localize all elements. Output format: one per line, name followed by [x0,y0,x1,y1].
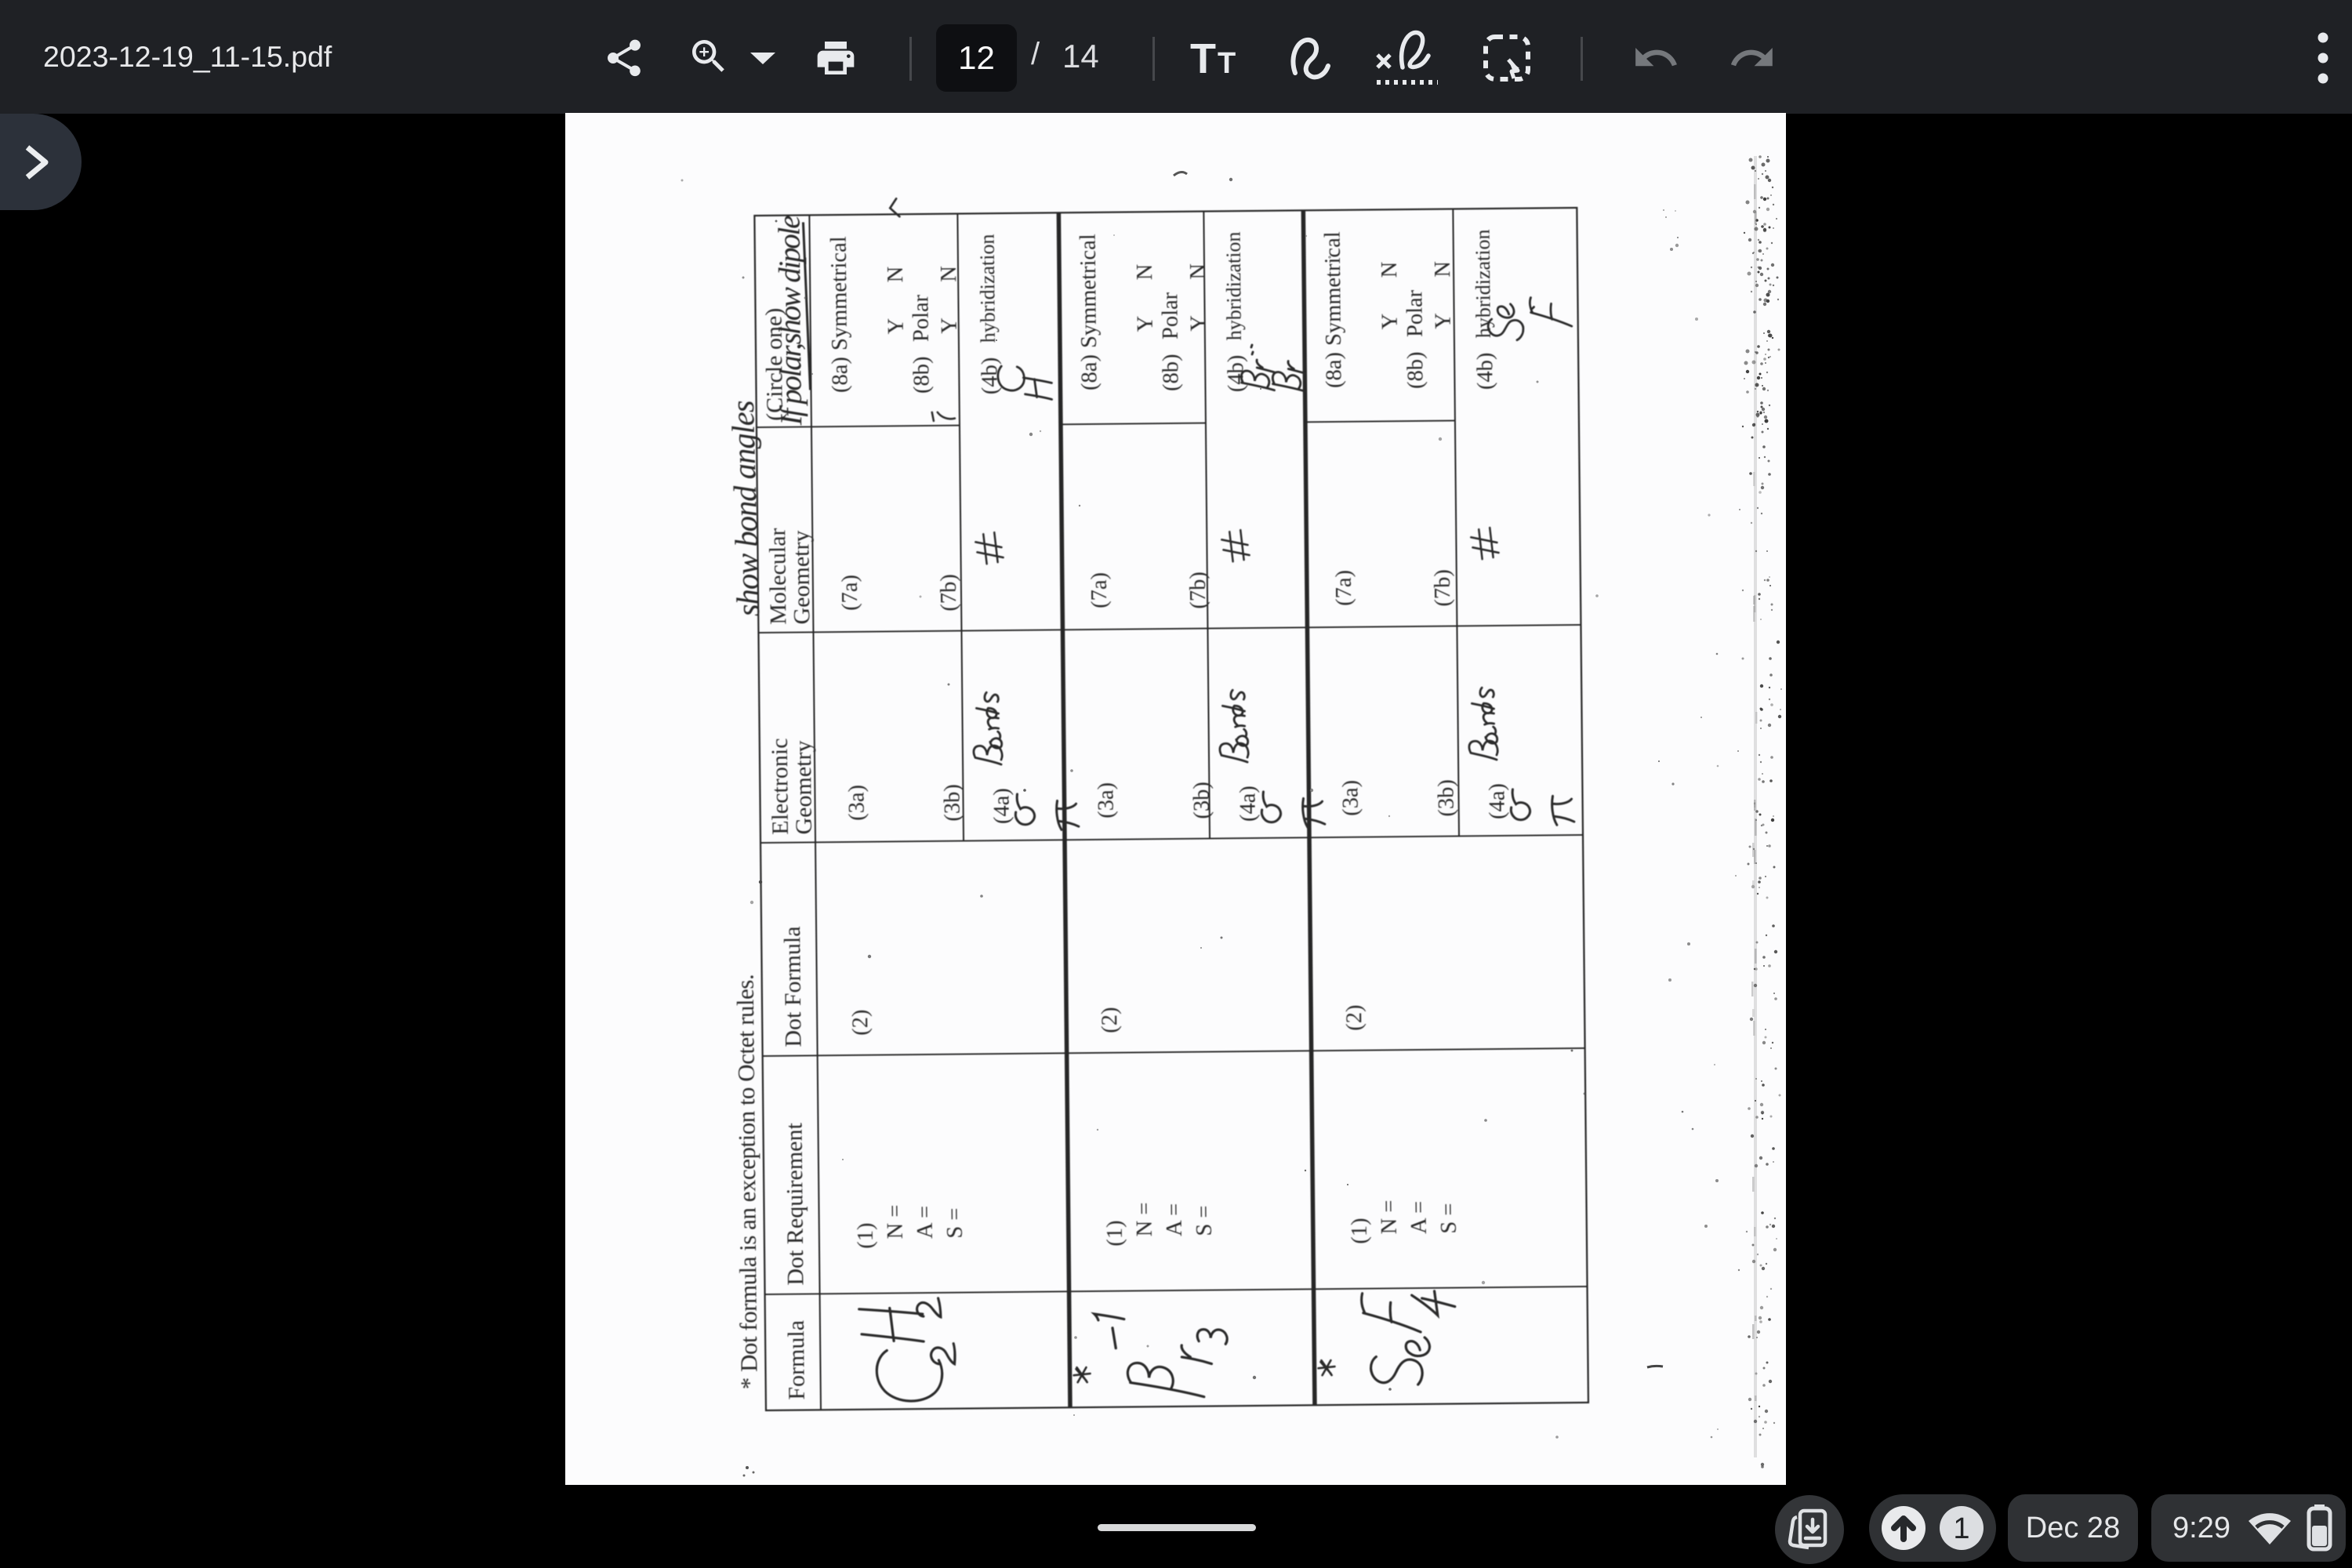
svg-text:T: T [1218,47,1236,80]
svg-text:T: T [1190,35,1216,82]
svg-text:1: 1 [1953,1512,1969,1545]
